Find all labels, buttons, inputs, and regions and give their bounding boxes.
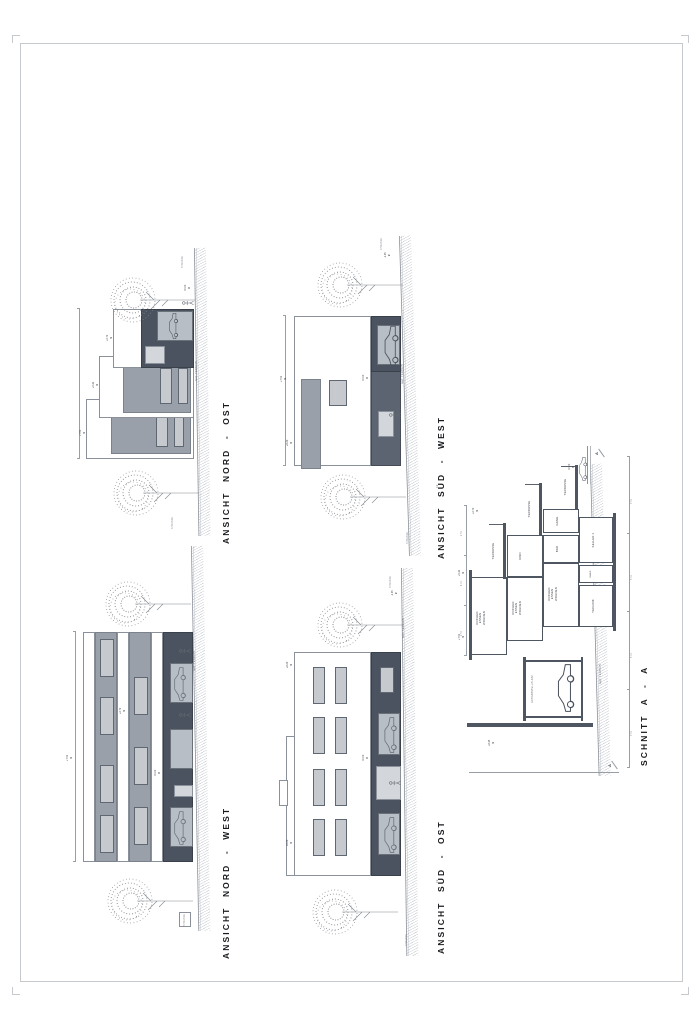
room-label-keller: KELLER 1 — [592, 520, 595, 560]
level-marker: +5.41▼ — [459, 570, 465, 576]
tree-icon — [315, 257, 405, 313]
room-label-technik: TECHNIK — [592, 588, 595, 624]
nat-terrain-label: NAT. TERRAIN — [402, 618, 405, 638]
level-triangle-icon: ▼ — [83, 431, 86, 434]
window — [313, 667, 325, 704]
street-surface — [590, 446, 591, 484]
dimension-tick — [627, 611, 630, 612]
elevation-nord-west: +7.51▼ +2.72▼ ±0.00▼ — [61, 546, 256, 966]
dimension-tick — [73, 861, 76, 862]
carport-post — [526, 717, 581, 719]
dimension-tick — [283, 315, 286, 316]
elevation-nord-ost: +7.51▼ +5.41▼ +2.72▼ ±0.00▼ NAT. TERRAIN… — [71, 246, 236, 546]
tree-icon — [103, 576, 193, 632]
corner-tick — [12, 987, 20, 995]
room-bad — [543, 535, 579, 563]
level-marker: ±0.00▼ — [363, 375, 369, 381]
level-marker: ±0.00▼ — [155, 770, 161, 776]
drawing-canvas: +7.51▼ +2.72▼ ±0.00▼ — [21, 44, 682, 981]
level-marker: +7.51▼ — [67, 755, 73, 761]
window — [160, 368, 172, 404]
dimension-tick — [77, 458, 80, 459]
level-triangle-icon: ▼ — [462, 571, 465, 574]
terrace-deck — [539, 483, 542, 535]
dimension-line — [79, 309, 80, 459]
level-triangle-icon: ▼ — [572, 465, 575, 468]
person-icon — [389, 412, 401, 418]
level-triangle-icon: ▼ — [70, 756, 73, 759]
room-technik — [579, 585, 613, 627]
room-kind — [507, 535, 543, 577]
window — [134, 807, 148, 845]
room-label-terrasse: TERRASSE — [528, 486, 531, 532]
window — [134, 747, 148, 785]
elevation-title-sued-ost: ANSICHT SÜD - OST — [436, 820, 446, 954]
person-icon — [179, 648, 191, 654]
street-label: STRASSE — [390, 576, 392, 588]
facade-panel — [123, 361, 191, 413]
section-a-a: AUTOABSTELLPLATZ KOCHEN ESSEN WOHNEN KOC… — [459, 446, 654, 776]
dimension-line-vertical — [469, 772, 619, 773]
street-label: STRASSE — [407, 532, 409, 544]
terrace-railing — [525, 484, 539, 485]
window — [335, 667, 347, 704]
level-marker: +2.72▼ — [107, 335, 113, 341]
dimension-line — [75, 632, 76, 862]
level-triangle-icon: ▼ — [290, 663, 293, 666]
window — [380, 667, 394, 693]
tree-icon — [310, 884, 400, 940]
street-label: STRASSE — [381, 238, 383, 250]
facade-band — [301, 379, 321, 469]
street-label: STRASSE — [406, 934, 408, 946]
street-label: STRASSE — [184, 914, 186, 926]
dimension-tick — [464, 655, 467, 656]
person-icon — [389, 780, 401, 786]
level-triangle-icon: ▼ — [492, 741, 495, 744]
dimension-tick — [73, 631, 76, 632]
room-label-gang: GANG — [556, 511, 559, 531]
level-marker: ±0.00▼ — [569, 464, 575, 470]
person-icon — [182, 300, 194, 306]
facade-band-middle — [129, 632, 151, 862]
elevation-title-nord-ost: ANSICHT NORD - OST — [221, 401, 231, 544]
level-triangle-icon: ▼ — [110, 336, 113, 339]
level-marker: +6.23▼ — [287, 662, 293, 668]
corner-tick — [681, 987, 689, 995]
level-marker: +8.45▼ — [489, 740, 495, 746]
facade — [294, 652, 371, 876]
level-marker: +7.51▼ — [80, 430, 86, 436]
tree-icon — [318, 469, 408, 525]
facade-band-upper — [95, 632, 117, 862]
dimension-tick — [627, 767, 630, 768]
section-marker-a: A — [594, 452, 599, 455]
person-icon — [179, 712, 191, 718]
room-label-bad: BAD — [556, 537, 559, 561]
terrace-deck — [503, 523, 506, 579]
street-label: STRASSE — [182, 256, 184, 268]
dimension-line — [466, 506, 467, 656]
car-icon — [578, 456, 588, 482]
dimension-line — [629, 456, 630, 768]
room-label-terrasse: TERRASSE — [564, 466, 567, 508]
dimension-tick — [77, 308, 80, 309]
dimension-value: 4.01 — [461, 581, 463, 586]
window — [134, 677, 148, 715]
carport-roof-slab — [523, 657, 526, 721]
dimension-tick — [464, 555, 467, 556]
car-icon — [173, 810, 187, 846]
window — [313, 769, 325, 806]
dimension-tick — [627, 456, 630, 457]
level-triangle-icon: ▼ — [366, 376, 369, 379]
nat-terrain-label: NAT. TERRAIN — [401, 364, 405, 384]
nat-terrain-label: NAT. TERRAIN — [193, 651, 196, 671]
basement-floor-slab — [613, 513, 616, 631]
dimension-value: 3.51 — [631, 499, 633, 504]
dimension-tick — [627, 689, 630, 690]
section-marker-line — [598, 449, 605, 458]
window — [329, 380, 347, 406]
level-marker: ±0.00▼ — [363, 755, 369, 761]
window — [335, 819, 347, 856]
level-triangle-icon: ▼ — [366, 756, 369, 759]
window — [100, 765, 114, 803]
tree-icon — [111, 465, 201, 521]
car-icon — [556, 662, 576, 714]
window — [335, 717, 347, 754]
window — [100, 639, 114, 677]
roof-box — [279, 780, 288, 806]
level-triangle-icon: ▼ — [284, 377, 287, 380]
section-marker-a: A — [607, 764, 612, 767]
window — [335, 769, 347, 806]
window — [145, 346, 165, 364]
level-marker: -1.35▼ — [385, 252, 391, 258]
room-label-kew: KOCHEN ESSEN WOHNEN — [548, 566, 558, 622]
level-marker: +5.41▼ — [93, 382, 99, 388]
facade-slab — [117, 632, 129, 862]
elevation-sued-west: +6.23▼ +7.51▼ ±0.00▼ -1.35▼ NAT. TERRAIN… — [273, 231, 453, 566]
level-triangle-icon: ▼ — [388, 253, 391, 256]
room-gang — [543, 509, 579, 533]
street-label: STRASSE — [172, 517, 174, 529]
room-gang-2 — [579, 565, 613, 583]
corner-tick — [12, 35, 20, 43]
dimension-value: 5.01 — [631, 575, 633, 580]
window — [178, 368, 188, 404]
car-icon — [383, 324, 400, 368]
corner-tick — [681, 35, 689, 43]
room-label-terrasse: TERRASSE — [492, 526, 495, 576]
dimension-value: 2.51 — [461, 631, 463, 636]
level-triangle-icon: ▼ — [158, 771, 161, 774]
garage-door — [170, 729, 193, 769]
level-triangle-icon: ▼ — [476, 509, 479, 512]
tree-icon — [315, 597, 405, 653]
section-marker-line — [611, 761, 618, 770]
elevation-title-sued-west: ANSICHT SÜD - WEST — [436, 416, 446, 559]
facade-parapet — [83, 632, 95, 862]
facade-slab — [151, 632, 163, 862]
entry-door — [174, 785, 193, 797]
elevation-title-nord-west: ANSICHT NORD - WEST — [221, 807, 231, 959]
car-icon — [383, 716, 398, 754]
level-marker: +7.51▼ — [281, 376, 287, 382]
dimension-value: 5.01 — [631, 653, 633, 658]
dimension-tick — [627, 533, 630, 534]
level-marker: +2.72▼ — [120, 708, 126, 714]
room-label-kew: KOCHEN ESSEN WOHNEN — [512, 580, 522, 636]
dimension-tick — [283, 465, 286, 466]
car-icon — [173, 666, 187, 702]
level-triangle-icon: ▼ — [123, 709, 126, 712]
sheet-frame: +7.51▼ +2.72▼ ±0.00▼ — [20, 43, 683, 982]
level-marker: +6.23▼ — [287, 440, 293, 446]
elevation-sued-ost: +6.23▼ +6.23▼ ±0.00▼ -1.35▼ NAT. TERRAIN… — [273, 566, 453, 966]
window — [313, 819, 325, 856]
window — [313, 717, 325, 754]
level-triangle-icon: ▼ — [395, 591, 398, 594]
car-icon — [383, 816, 398, 854]
window — [100, 815, 114, 853]
retaining-wall — [467, 723, 593, 727]
carport-floor-slab — [581, 657, 583, 721]
room-label-kind: KIND — [519, 539, 522, 573]
level-triangle-icon: ▼ — [290, 441, 293, 444]
room-label-gang: GANG — [590, 565, 593, 583]
level-triangle-icon: ▼ — [96, 383, 99, 386]
section-title: SCHNITT A - A — [639, 666, 649, 766]
room-label-kew: KOCHEN ESSEN WOHNEN — [476, 588, 486, 648]
level-marker: +2.72▼ — [473, 508, 479, 514]
nat-terrain-label: NAT. TERRAIN — [195, 361, 198, 381]
level-triangle-icon: ▼ — [290, 841, 293, 844]
room-keller — [579, 517, 613, 563]
terrace-railing — [489, 524, 503, 525]
dimension-value: 3.51 — [631, 731, 633, 736]
level-marker: +6.23▼ — [287, 840, 293, 846]
dimension-tick — [464, 605, 467, 606]
nat-terrain-label: NAT. TERRAIN — [599, 664, 603, 684]
window — [100, 697, 114, 735]
dimension-tick — [464, 505, 467, 506]
level-marker: -1.35▼ — [392, 590, 398, 596]
room-label-autoabstellplatz: AUTOABSTELLPLATZ — [531, 654, 534, 724]
dimension-value: 2.51 — [461, 531, 463, 536]
